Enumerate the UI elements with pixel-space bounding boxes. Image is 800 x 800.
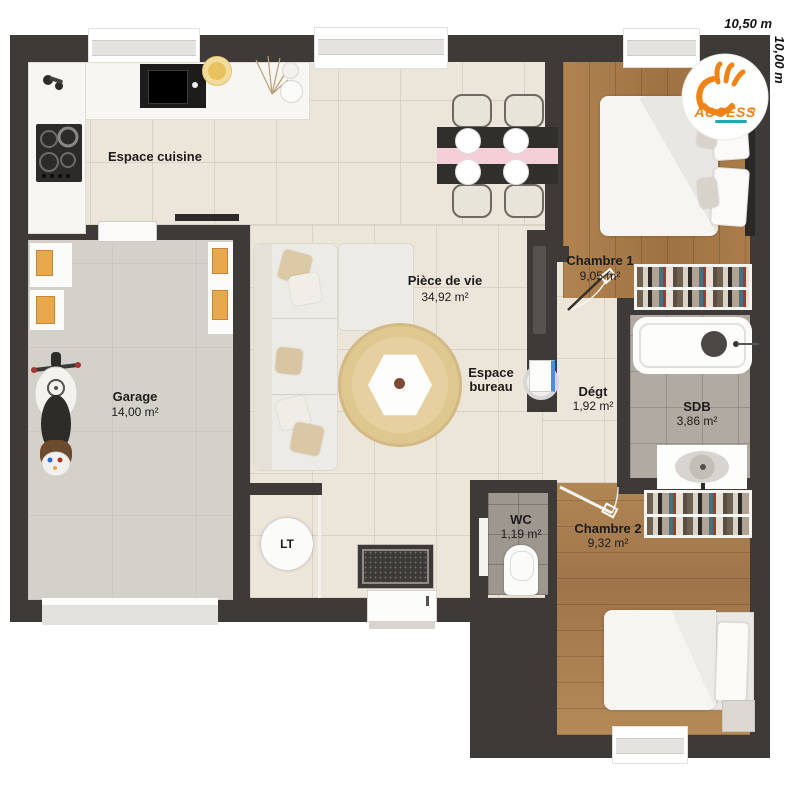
sofa-pillow [288, 272, 323, 307]
room-area-chambre1: 9,05 m² [560, 269, 640, 283]
room-area-garage: 14,00 m² [95, 405, 175, 419]
room-label-bureau: Espace bureau [459, 366, 523, 394]
laptop [529, 360, 555, 392]
room-label-cuisine: Espace cuisine [95, 150, 215, 164]
access-logo-text: ACCESS [693, 104, 756, 120]
laundry-nook-wall [248, 483, 322, 495]
dining-chair [452, 184, 492, 218]
room-label-wc: WC [491, 513, 551, 527]
entrance-door-step [369, 622, 435, 629]
wc-top-wall [488, 480, 557, 493]
bed2-duvet [604, 610, 716, 710]
bedroom2-window [612, 726, 688, 764]
toilet-seat [510, 551, 534, 581]
room-label-sdb: SDB [657, 400, 737, 414]
kitchen-bar-shelf [175, 214, 239, 221]
floor-plan: 10,50 m 10,00 m [0, 0, 800, 800]
sofa-pillow [275, 347, 304, 376]
dining-chair [504, 94, 544, 128]
table-runner [437, 148, 558, 164]
wc-door [479, 518, 488, 576]
kitchen-faucet-icon [40, 70, 68, 96]
bread-plate [202, 56, 232, 86]
plan-width-dimension: 10,50 m [690, 16, 772, 31]
room-label-chambre1: Chambre 1 [560, 254, 640, 268]
bed2-fold [652, 610, 716, 710]
room-label-piece-de-vie: Pièce de vie [385, 274, 505, 288]
sink-drain-icon [700, 464, 706, 470]
bedroom1-closet [634, 264, 752, 310]
dining-chair [452, 94, 492, 128]
bathtub [633, 317, 752, 374]
storage-box [36, 250, 53, 276]
dining-chair [504, 184, 544, 218]
living-room-window [314, 27, 448, 69]
entrance-door-handle-icon [426, 596, 429, 606]
laundry-nook-divider [318, 495, 321, 598]
sofa-backrest [254, 244, 272, 470]
room-area-wc: 1,19 m² [491, 527, 551, 541]
bathtub-handle-icon [737, 343, 759, 345]
sink-basin [148, 70, 188, 104]
storage-box [212, 290, 228, 320]
bedroom2-closet [644, 490, 752, 538]
garage-interior-door [98, 221, 157, 242]
bed2-pillow [715, 621, 750, 702]
plan-height-dimension: 10,00 m [772, 36, 787, 136]
room-label-chambre2: Chambre 2 [568, 522, 648, 536]
bed1-cushion [696, 177, 720, 209]
dining-table [437, 127, 558, 184]
bathtub-basin [639, 323, 746, 368]
doormat [357, 544, 434, 589]
room-label-garage: Garage [95, 390, 175, 404]
bowl-small [282, 62, 299, 79]
plate [455, 128, 481, 154]
plate [455, 159, 481, 185]
access-logo: ACCESS [681, 53, 769, 141]
room-area-piece-de-vie: 34,92 m² [385, 290, 505, 304]
bed2-nightstand [722, 700, 755, 732]
table-vase [394, 378, 405, 389]
bowl-large [280, 80, 303, 103]
garage-door [42, 598, 218, 625]
toilet [504, 545, 538, 595]
plate [503, 159, 529, 185]
room-area-chambre2: 9,32 m² [568, 536, 648, 550]
room-label-degt: Dégt [563, 385, 623, 399]
sofa-pillow [289, 421, 325, 457]
vanity [657, 445, 747, 489]
cooktop [36, 124, 82, 182]
water-heater: LT [261, 518, 313, 570]
entrance-door [367, 590, 437, 622]
room-area-sdb: 3,86 m² [657, 414, 737, 428]
tv-screen [533, 246, 546, 334]
motorcycle [28, 350, 84, 476]
sink-faucet-icon [192, 82, 198, 88]
room-area-degt: 1,92 m² [563, 399, 623, 413]
storage-box [212, 248, 228, 274]
plate [503, 128, 529, 154]
water-heater-label: LT [280, 537, 294, 551]
kitchen-sink [140, 64, 206, 108]
storage-box [36, 296, 55, 324]
bathtub-drain-icon [701, 331, 727, 357]
